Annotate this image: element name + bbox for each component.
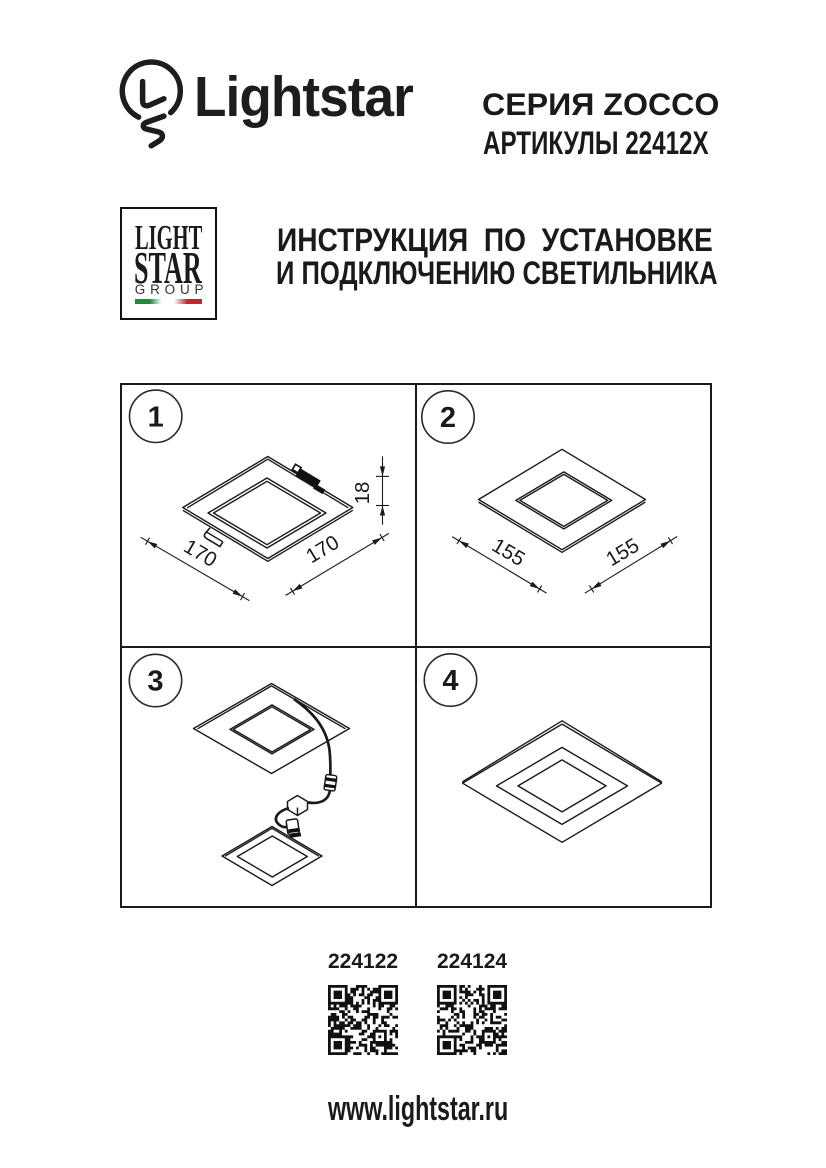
svg-text:170: 170 <box>180 535 221 572</box>
svg-text:18: 18 <box>351 482 374 505</box>
svg-text:1: 1 <box>148 401 164 433</box>
svg-text:155: 155 <box>488 534 529 571</box>
svg-text:3: 3 <box>147 666 163 698</box>
svg-text:2: 2 <box>440 402 456 434</box>
svg-text:155: 155 <box>602 534 643 571</box>
svg-text:4: 4 <box>442 665 458 697</box>
